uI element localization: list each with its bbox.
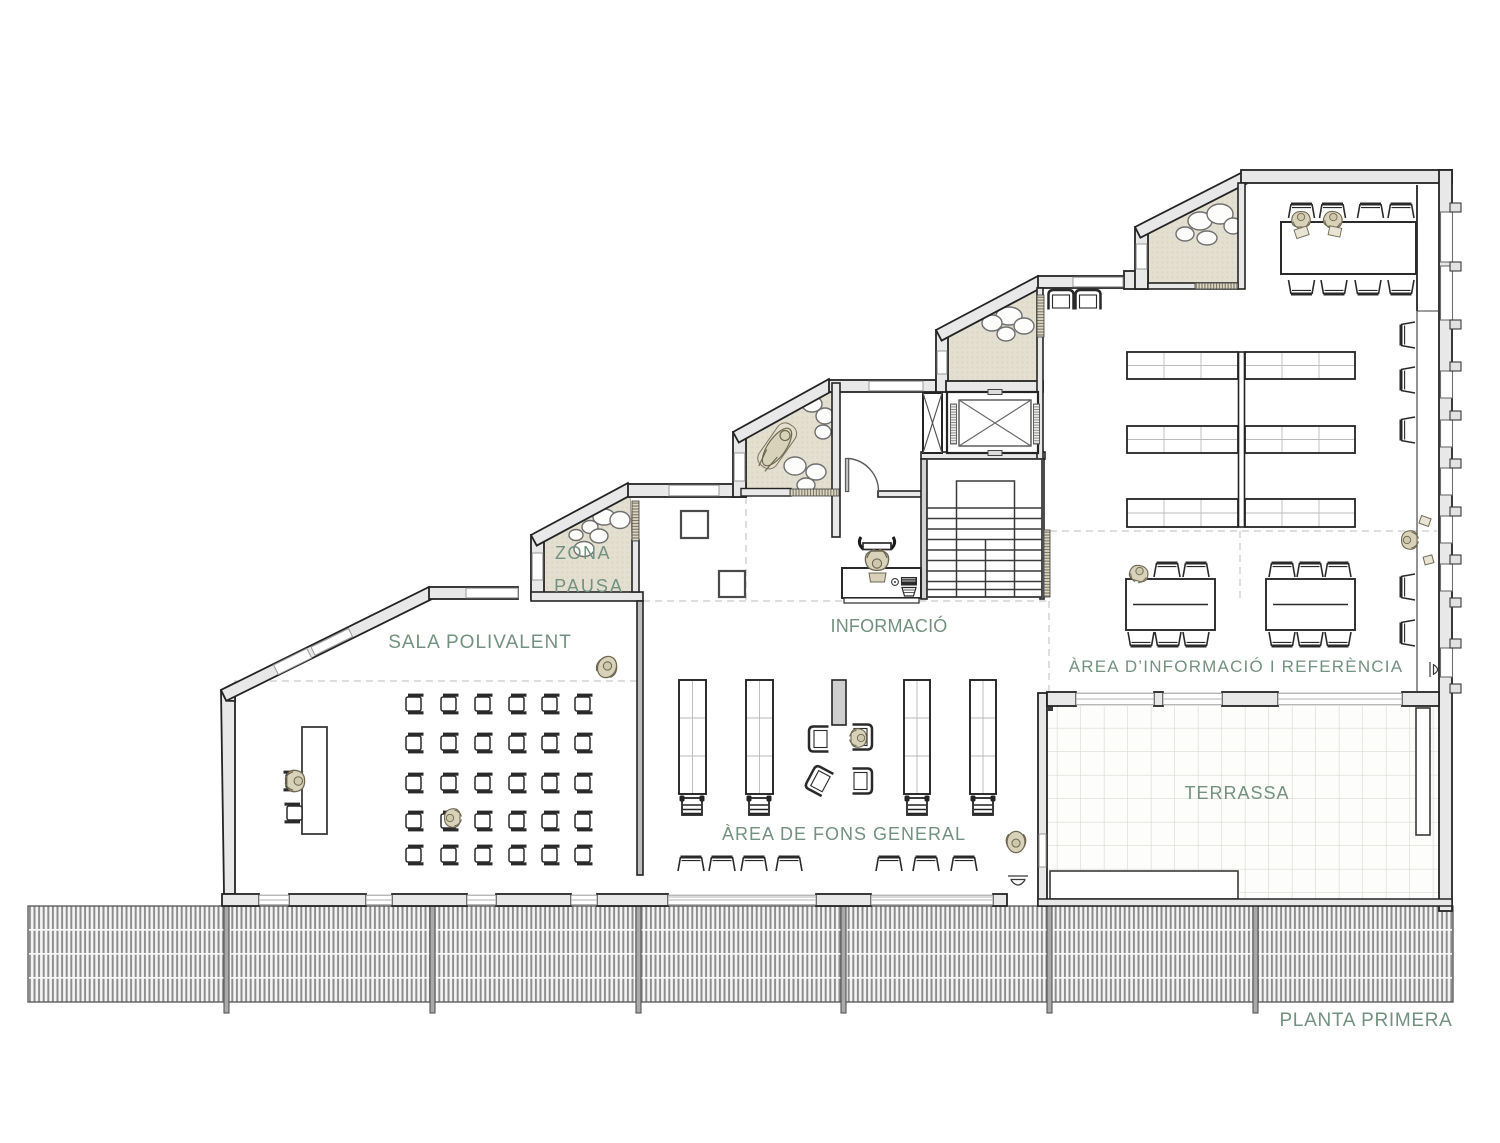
svg-text:SALA POLIVALENT: SALA POLIVALENT [388,632,572,653]
svg-text:PLANTA PRIMERA: PLANTA PRIMERA [1279,1010,1452,1031]
svg-text:ÀREA D’INFORMACIÓ I REFERÈNCIA: ÀREA D’INFORMACIÓ I REFERÈNCIA [1069,657,1403,676]
svg-text:PAUSA: PAUSA [554,576,624,596]
svg-text:ÀREA DE FONS GENERAL: ÀREA DE FONS GENERAL [722,824,966,844]
svg-text:INFORMACIÓ: INFORMACIÓ [831,615,948,636]
svg-text:TERRASSA: TERRASSA [1184,783,1289,803]
svg-text:ZONA: ZONA [555,543,611,563]
